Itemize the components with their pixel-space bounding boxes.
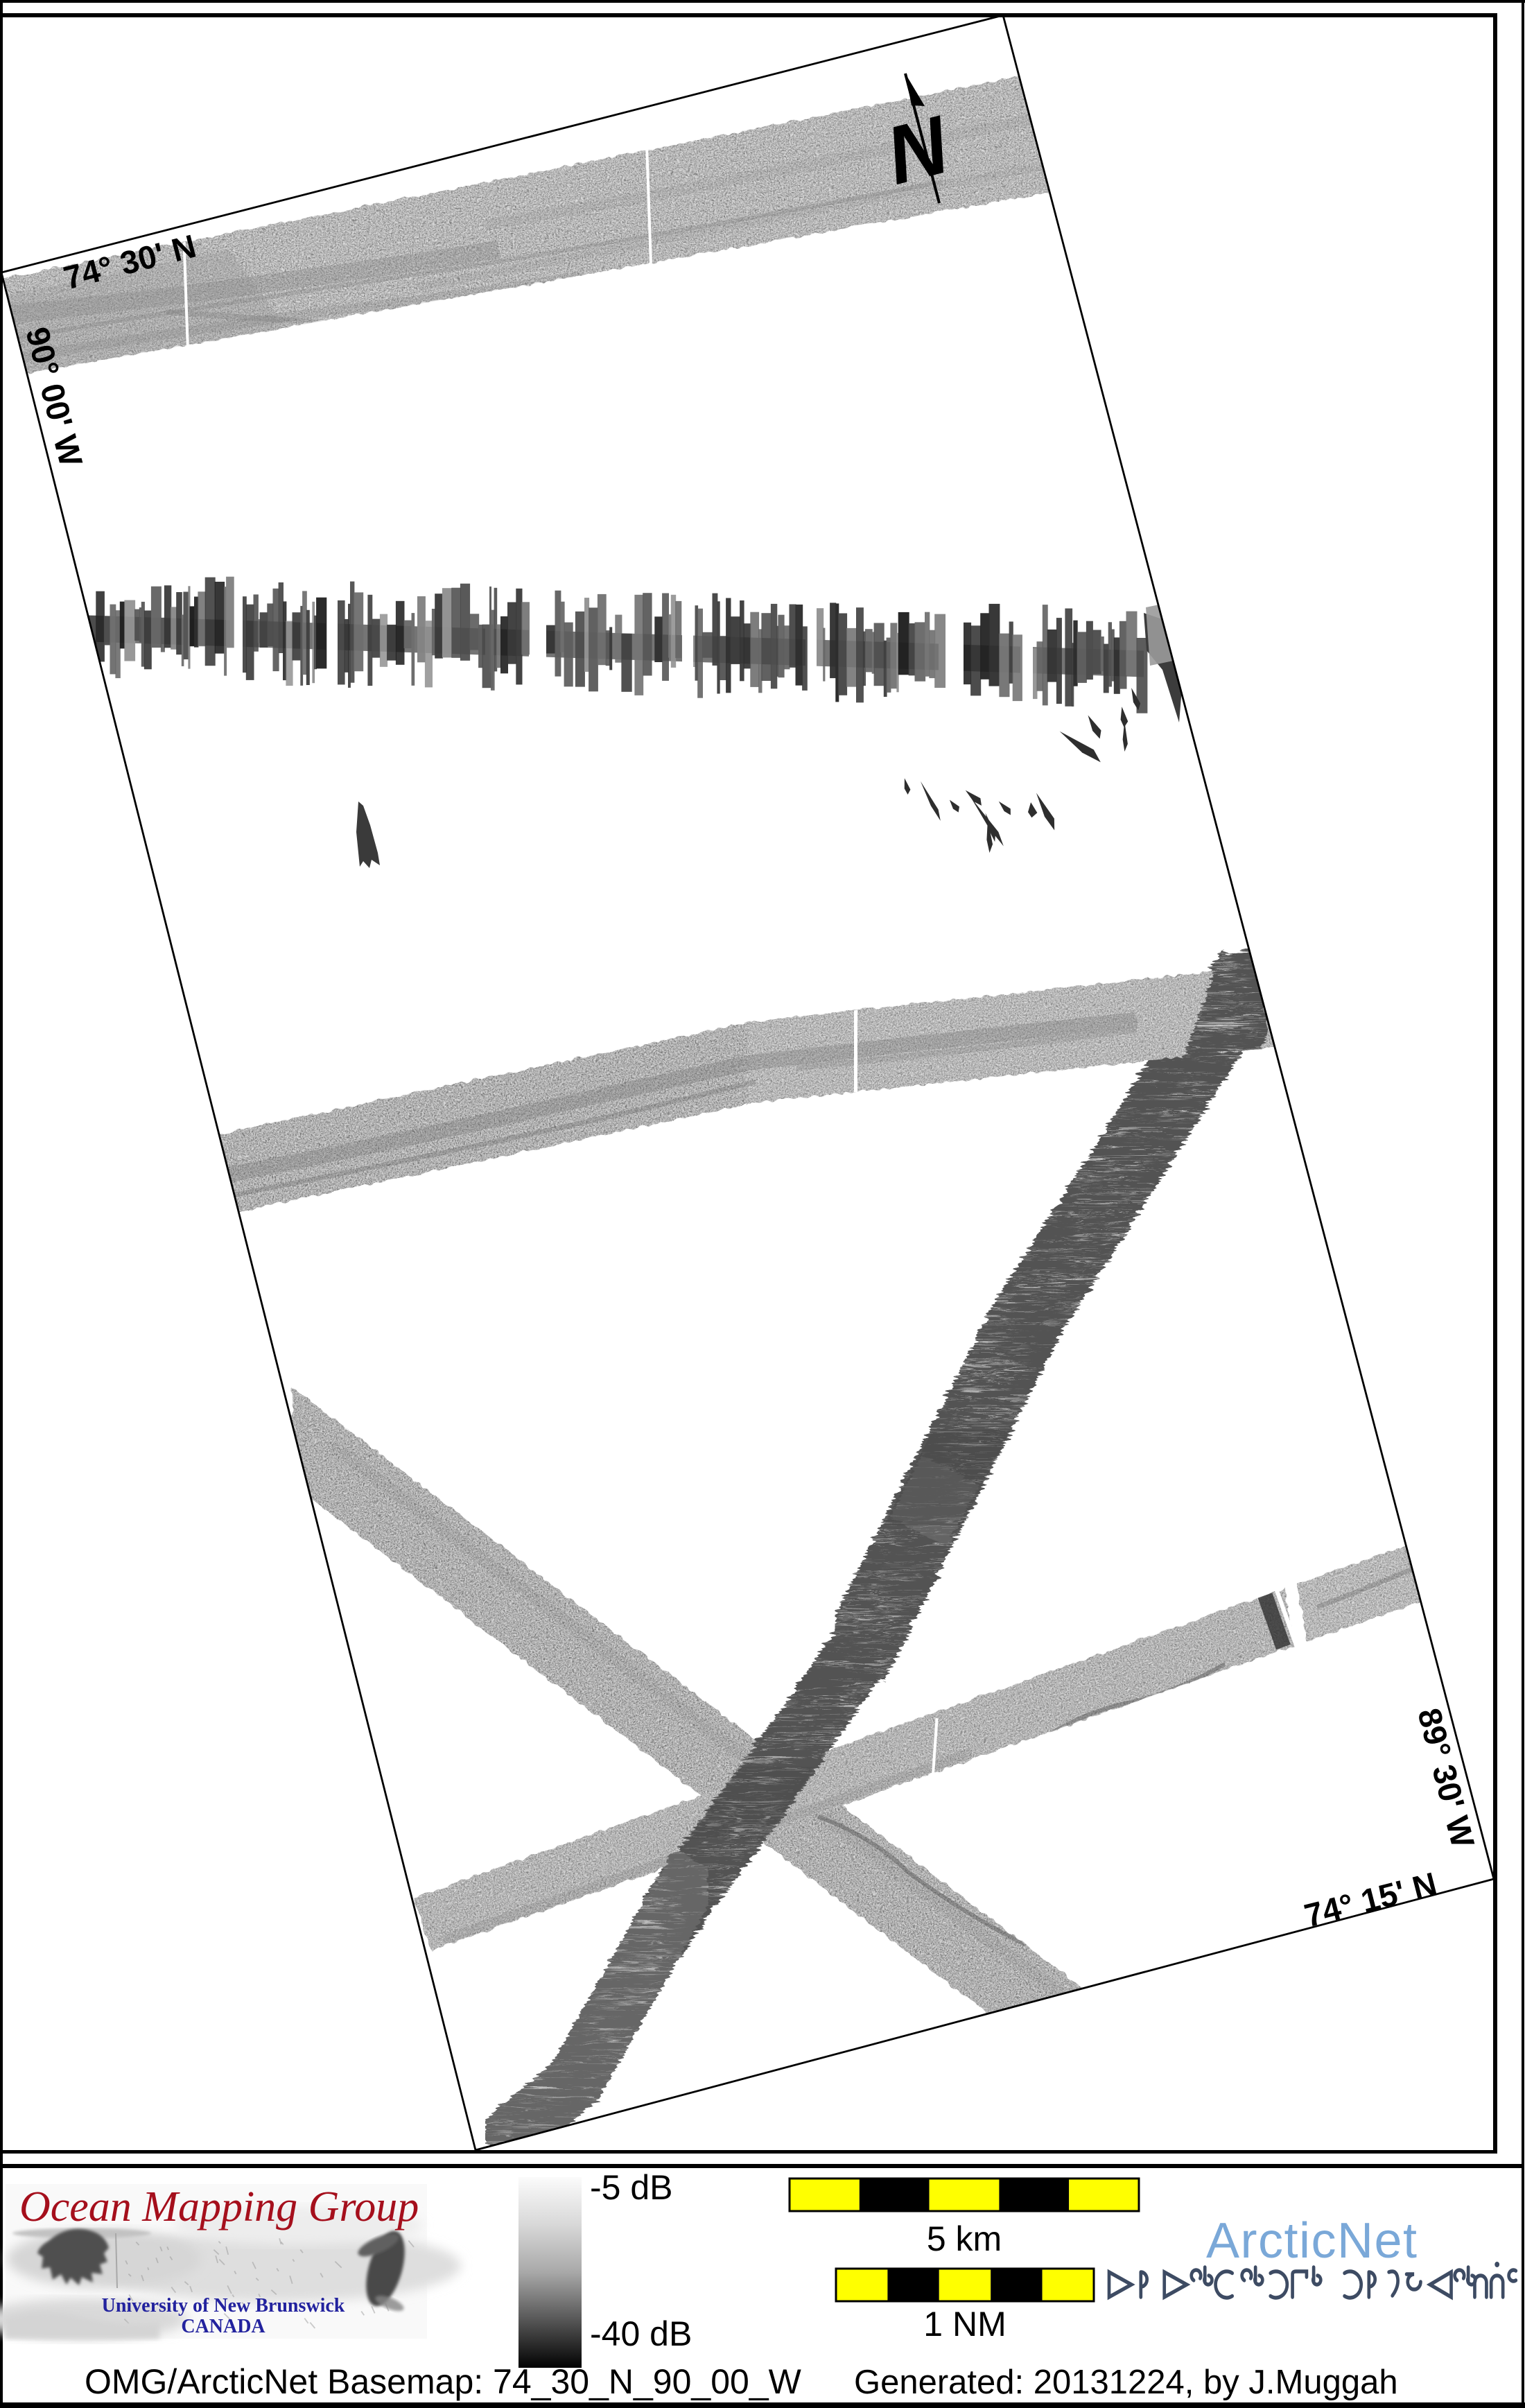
svg-text:-40 dB: -40 dB xyxy=(590,2314,692,2353)
svg-text:University of New Brunswick: University of New Brunswick xyxy=(102,2295,345,2316)
svg-text:CANADA: CANADA xyxy=(181,2316,265,2337)
svg-text:1 NM: 1 NM xyxy=(923,2305,1006,2344)
svg-text:Generated: 20131224, by J.Mugg: Generated: 20131224, by J.Muggah xyxy=(854,2364,1398,2401)
svg-text:Ocean Mapping Group: Ocean Mapping Group xyxy=(19,2183,419,2231)
svg-text:5 km: 5 km xyxy=(927,2219,1002,2258)
svg-text:-5 dB: -5 dB xyxy=(590,2168,673,2207)
svg-text:ArcticNet: ArcticNet xyxy=(1206,2213,1418,2269)
svg-text:OMG/ArcticNet Basemap: 74_30_N: OMG/ArcticNet Basemap: 74_30_N_90_00_W xyxy=(85,2362,802,2401)
